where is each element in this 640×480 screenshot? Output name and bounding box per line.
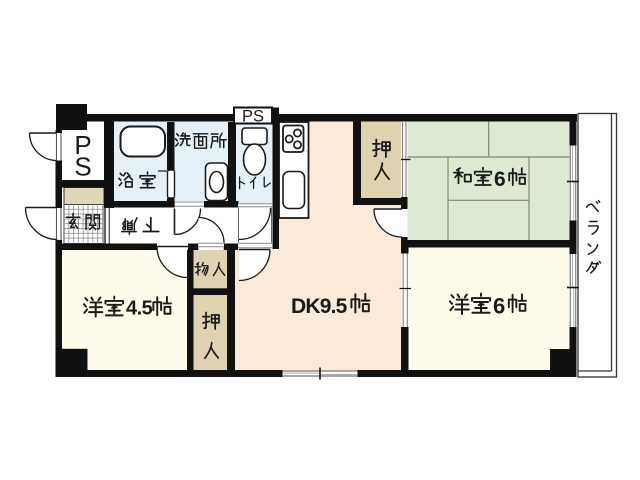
svg-text:S: S [74, 152, 91, 182]
svg-text:PS: PS [242, 108, 264, 126]
svg-text:DK9.5: DK9.5 [291, 295, 348, 318]
svg-text:4.5: 4.5 [126, 298, 153, 320]
svg-text:6: 6 [493, 294, 505, 319]
svg-text:6: 6 [494, 168, 506, 191]
